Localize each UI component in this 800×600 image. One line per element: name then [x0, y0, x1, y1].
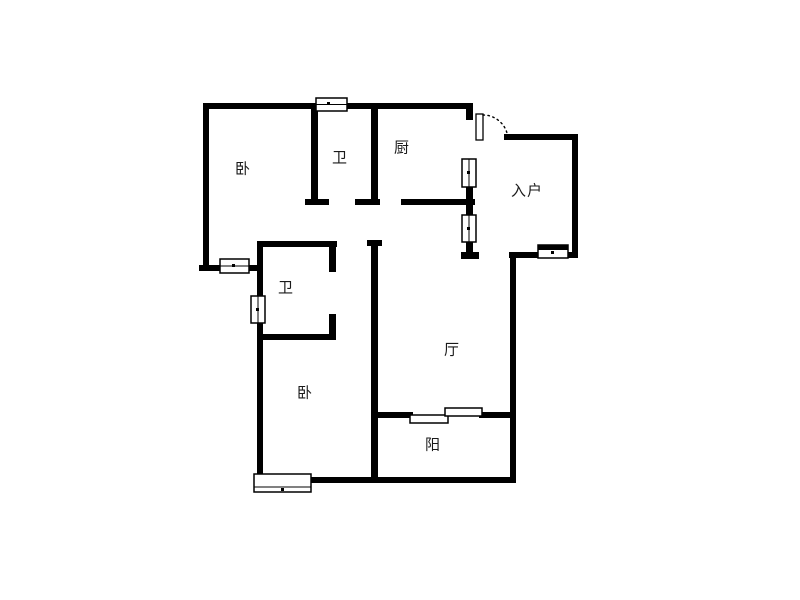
wall-bathroom-mid-bottom [257, 334, 336, 340]
wall-bathroom-top-bottom-left [305, 199, 329, 205]
wall-bathroom-mid-right-upper [329, 241, 336, 272]
window-icon [251, 296, 265, 323]
window-icon [462, 215, 476, 242]
room-label-living-room: 厅 [444, 343, 460, 358]
wall-bathroom-kitchen-divider [371, 103, 378, 205]
floor-plan: 卧 卫 厨 入户 卫 卧 厅 阳 [0, 0, 800, 600]
entry-door-leaf [476, 114, 483, 140]
wall-bathroom-mid-top [257, 241, 337, 247]
wall-balcony-top-left [371, 412, 413, 418]
wall-segments [199, 103, 578, 483]
wall-bedroom-bathroom-divider [311, 103, 318, 205]
wall-bathroom-top-bottom-right [355, 199, 380, 205]
wall-living-right [510, 252, 516, 483]
room-label-bathroom-top: 卫 [332, 151, 348, 166]
wall-living-left [371, 241, 378, 483]
room-label-bedroom-bottom: 卧 [297, 386, 313, 401]
window-icon [254, 474, 311, 492]
wall-left-upper [203, 103, 209, 271]
window-icon [462, 159, 476, 187]
balcony-sliding-door-icon [410, 408, 482, 423]
wall-entry-right [572, 134, 578, 258]
wall-kitchen-entry-mid [466, 185, 473, 218]
room-label-kitchen: 厨 [394, 141, 410, 156]
wall-kitchen-entry-stub [466, 103, 473, 120]
wall-left-lower [257, 241, 263, 483]
window-icon [538, 245, 568, 258]
room-label-balcony: 阳 [425, 438, 441, 453]
room-label-bathroom-middle: 卫 [278, 281, 294, 296]
window-icon [220, 259, 249, 273]
wall-entry-top [504, 134, 578, 140]
entry-door-icon [476, 114, 508, 140]
room-label-bedroom-top-left: 卧 [235, 162, 251, 177]
floor-plan-drawing [0, 0, 800, 600]
window-icon [316, 98, 347, 111]
wall-kitchen-entry-cap [461, 252, 479, 259]
room-label-entry-hall: 入户 [511, 184, 543, 199]
wall-living-left-cap [367, 240, 382, 246]
wall-kitchen-bottom [401, 199, 475, 205]
wall-balcony-top-right [479, 412, 516, 418]
